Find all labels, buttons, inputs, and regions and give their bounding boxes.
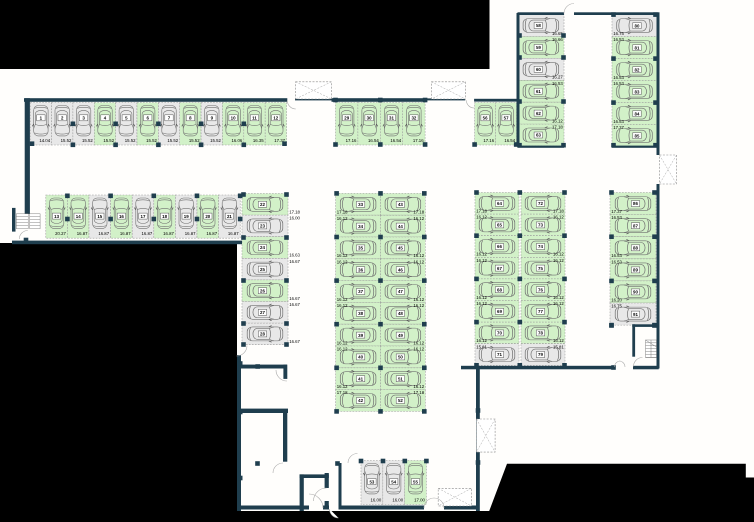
svg-text:27: 27 [260, 310, 265, 315]
svg-text:16.12: 16.12 [476, 338, 487, 343]
svg-text:17.16: 17.16 [483, 138, 494, 143]
svg-text:17.37: 17.37 [611, 209, 622, 214]
svg-text:16.12: 16.12 [337, 347, 348, 352]
svg-text:30: 30 [367, 116, 372, 121]
svg-text:31: 31 [389, 116, 394, 121]
svg-text:53: 53 [369, 479, 374, 484]
svg-text:34: 34 [358, 224, 363, 229]
svg-text:17.18: 17.18 [337, 210, 348, 215]
svg-text:16.63: 16.63 [289, 253, 300, 258]
svg-text:16.53: 16.53 [613, 37, 624, 42]
svg-text:59: 59 [536, 45, 541, 50]
svg-text:52: 52 [398, 398, 403, 403]
svg-text:80: 80 [635, 23, 640, 28]
svg-text:64: 64 [497, 201, 502, 206]
svg-text:16.66: 16.66 [552, 37, 563, 42]
svg-text:17.00: 17.00 [414, 497, 425, 502]
svg-text:17.18: 17.18 [553, 209, 564, 214]
svg-text:16.12: 16.12 [476, 258, 487, 263]
svg-text:16.53: 16.53 [611, 215, 622, 220]
svg-text:16.35: 16.35 [253, 138, 264, 143]
svg-text:10: 10 [231, 116, 236, 121]
svg-text:15.52: 15.52 [125, 138, 136, 143]
svg-text:16.12: 16.12 [337, 259, 348, 264]
svg-text:13: 13 [54, 214, 59, 219]
svg-text:28: 28 [260, 332, 265, 337]
svg-text:16.87: 16.87 [142, 231, 153, 236]
svg-text:20: 20 [205, 214, 210, 219]
svg-text:14.04: 14.04 [39, 138, 50, 143]
svg-text:14: 14 [76, 214, 81, 219]
svg-text:16.53: 16.53 [613, 75, 624, 80]
svg-text:16.87: 16.87 [206, 231, 217, 236]
svg-text:89: 89 [633, 268, 638, 273]
svg-text:45: 45 [398, 246, 403, 251]
svg-text:15.52: 15.52 [146, 138, 157, 143]
svg-text:16.12: 16.12 [413, 259, 424, 264]
svg-text:83: 83 [635, 89, 640, 94]
svg-text:15.81: 15.81 [476, 344, 487, 349]
svg-text:16.54: 16.54 [504, 138, 515, 143]
svg-text:35: 35 [358, 246, 363, 251]
svg-text:46: 46 [398, 267, 403, 272]
svg-text:16.87: 16.87 [77, 231, 88, 236]
svg-text:66: 66 [497, 244, 502, 249]
svg-text:48: 48 [398, 311, 403, 316]
svg-text:15: 15 [97, 214, 102, 219]
svg-text:42: 42 [358, 398, 363, 403]
svg-text:16.12: 16.12 [413, 340, 424, 345]
svg-text:15.81: 15.81 [553, 344, 564, 349]
svg-text:91: 91 [633, 312, 638, 317]
svg-text:16.87: 16.87 [228, 231, 239, 236]
svg-text:38: 38 [358, 311, 363, 316]
svg-text:15.52: 15.52 [189, 138, 200, 143]
svg-text:16.12: 16.12 [553, 215, 564, 220]
svg-text:19: 19 [184, 214, 189, 219]
svg-text:16.12: 16.12 [476, 215, 487, 220]
svg-text:16.12: 16.12 [476, 295, 487, 300]
svg-text:81: 81 [635, 45, 640, 50]
svg-text:61: 61 [536, 89, 541, 94]
svg-text:17.18: 17.18 [413, 390, 424, 395]
svg-text:16.12: 16.12 [413, 297, 424, 302]
svg-text:12: 12 [273, 116, 278, 121]
svg-text:77: 77 [538, 309, 543, 314]
svg-text:16.06: 16.06 [232, 138, 243, 143]
svg-text:67: 67 [497, 266, 502, 271]
svg-text:55: 55 [413, 479, 418, 484]
svg-text:20.27: 20.27 [55, 231, 66, 236]
svg-text:90: 90 [633, 290, 638, 295]
svg-text:22: 22 [260, 202, 265, 207]
svg-text:16.53: 16.53 [613, 81, 624, 86]
svg-text:16.20: 16.20 [611, 297, 622, 302]
svg-text:70: 70 [497, 331, 502, 336]
svg-text:60: 60 [536, 67, 541, 72]
svg-text:17.18: 17.18 [413, 210, 424, 215]
svg-text:16.12: 16.12 [553, 258, 564, 263]
svg-text:87: 87 [633, 223, 638, 228]
svg-text:16.67: 16.67 [289, 296, 300, 301]
svg-text:29: 29 [344, 116, 349, 121]
svg-text:16.53: 16.53 [613, 119, 624, 124]
svg-text:71: 71 [497, 352, 502, 357]
svg-text:16.12: 16.12 [553, 301, 564, 306]
svg-text:16.54: 16.54 [368, 138, 379, 143]
svg-text:63: 63 [536, 133, 541, 138]
svg-text:26: 26 [260, 288, 265, 293]
svg-text:16.87: 16.87 [163, 231, 174, 236]
svg-text:16.67: 16.67 [289, 339, 300, 344]
svg-text:16.12: 16.12 [552, 119, 563, 124]
svg-text:17.18: 17.18 [337, 390, 348, 395]
svg-text:51: 51 [398, 376, 403, 381]
svg-text:16.12: 16.12 [337, 253, 348, 258]
svg-text:16.12: 16.12 [337, 303, 348, 308]
svg-text:68: 68 [497, 287, 502, 292]
svg-text:78: 78 [538, 331, 543, 336]
svg-text:57: 57 [504, 116, 509, 121]
svg-text:36: 36 [358, 267, 363, 272]
svg-text:40: 40 [358, 355, 363, 360]
svg-text:16.12: 16.12 [476, 252, 487, 257]
svg-text:16.54: 16.54 [390, 138, 401, 143]
svg-text:16.00: 16.00 [392, 497, 403, 502]
svg-text:16.12: 16.12 [413, 253, 424, 258]
svg-text:41: 41 [358, 376, 363, 381]
svg-text:85: 85 [635, 133, 640, 138]
svg-text:16.12: 16.12 [413, 347, 424, 352]
svg-text:18: 18 [162, 214, 167, 219]
svg-text:16.00: 16.00 [371, 497, 382, 502]
svg-text:16.12: 16.12 [337, 216, 348, 221]
svg-text:23: 23 [260, 224, 265, 229]
svg-text:17.18: 17.18 [289, 210, 300, 215]
svg-text:17: 17 [141, 214, 146, 219]
svg-text:16.12: 16.12 [553, 295, 564, 300]
svg-text:74: 74 [538, 244, 543, 249]
svg-text:16.67: 16.67 [289, 259, 300, 264]
svg-text:16.53: 16.53 [611, 259, 622, 264]
svg-text:16.00: 16.00 [289, 216, 300, 221]
svg-text:16: 16 [119, 214, 124, 219]
svg-text:17.18: 17.18 [552, 125, 563, 130]
svg-text:16.67: 16.67 [289, 302, 300, 307]
svg-text:16.75: 16.75 [613, 31, 624, 36]
svg-text:16.12: 16.12 [413, 384, 424, 389]
svg-text:58: 58 [536, 23, 541, 28]
svg-text:86: 86 [633, 201, 638, 206]
svg-text:15.52: 15.52 [82, 138, 93, 143]
svg-text:24: 24 [260, 245, 265, 250]
svg-text:39: 39 [358, 333, 363, 338]
svg-text:49: 49 [398, 333, 403, 338]
svg-text:50: 50 [398, 355, 403, 360]
svg-text:56: 56 [483, 116, 488, 121]
svg-text:32: 32 [411, 116, 416, 121]
svg-text:25: 25 [260, 267, 265, 272]
svg-text:88: 88 [633, 245, 638, 250]
svg-text:16.12: 16.12 [337, 384, 348, 389]
svg-text:17.16: 17.16 [346, 138, 357, 143]
svg-text:84: 84 [635, 111, 640, 116]
svg-text:37: 37 [358, 289, 363, 294]
svg-text:15.52: 15.52 [210, 138, 221, 143]
svg-text:72: 72 [538, 201, 543, 206]
svg-text:16.53: 16.53 [611, 253, 622, 258]
svg-text:16.75: 16.75 [611, 304, 622, 309]
svg-text:21: 21 [227, 214, 232, 219]
svg-text:16.12: 16.12 [337, 340, 348, 345]
svg-text:47: 47 [398, 289, 403, 294]
svg-text:17.37: 17.37 [613, 125, 624, 130]
svg-text:15.52: 15.52 [103, 138, 114, 143]
svg-text:44: 44 [398, 224, 403, 229]
svg-text:15.52: 15.52 [167, 138, 178, 143]
svg-text:16.12: 16.12 [413, 216, 424, 221]
svg-text:16.27: 16.27 [552, 75, 563, 80]
svg-text:79: 79 [538, 352, 543, 357]
svg-text:17.18: 17.18 [476, 209, 487, 214]
svg-text:16.12: 16.12 [476, 301, 487, 306]
svg-text:82: 82 [635, 67, 640, 72]
svg-text:16.12: 16.12 [553, 338, 564, 343]
svg-text:16.12: 16.12 [337, 297, 348, 302]
svg-text:75: 75 [538, 266, 543, 271]
svg-text:15.52: 15.52 [61, 138, 72, 143]
svg-text:33: 33 [358, 202, 363, 207]
svg-text:16.87: 16.87 [120, 231, 131, 236]
svg-text:16.12: 16.12 [553, 252, 564, 257]
svg-text:43: 43 [398, 202, 403, 207]
svg-text:69: 69 [497, 309, 502, 314]
svg-text:17.16: 17.16 [413, 138, 424, 143]
svg-text:65: 65 [497, 223, 502, 228]
svg-text:16.87: 16.87 [98, 231, 109, 236]
svg-text:16.12: 16.12 [413, 303, 424, 308]
svg-text:16.87: 16.87 [185, 231, 196, 236]
svg-text:62: 62 [536, 111, 541, 116]
svg-text:16.53: 16.53 [552, 81, 563, 86]
svg-text:11: 11 [252, 116, 257, 121]
svg-text:54: 54 [391, 479, 396, 484]
svg-text:73: 73 [538, 223, 543, 228]
svg-text:76: 76 [538, 287, 543, 292]
